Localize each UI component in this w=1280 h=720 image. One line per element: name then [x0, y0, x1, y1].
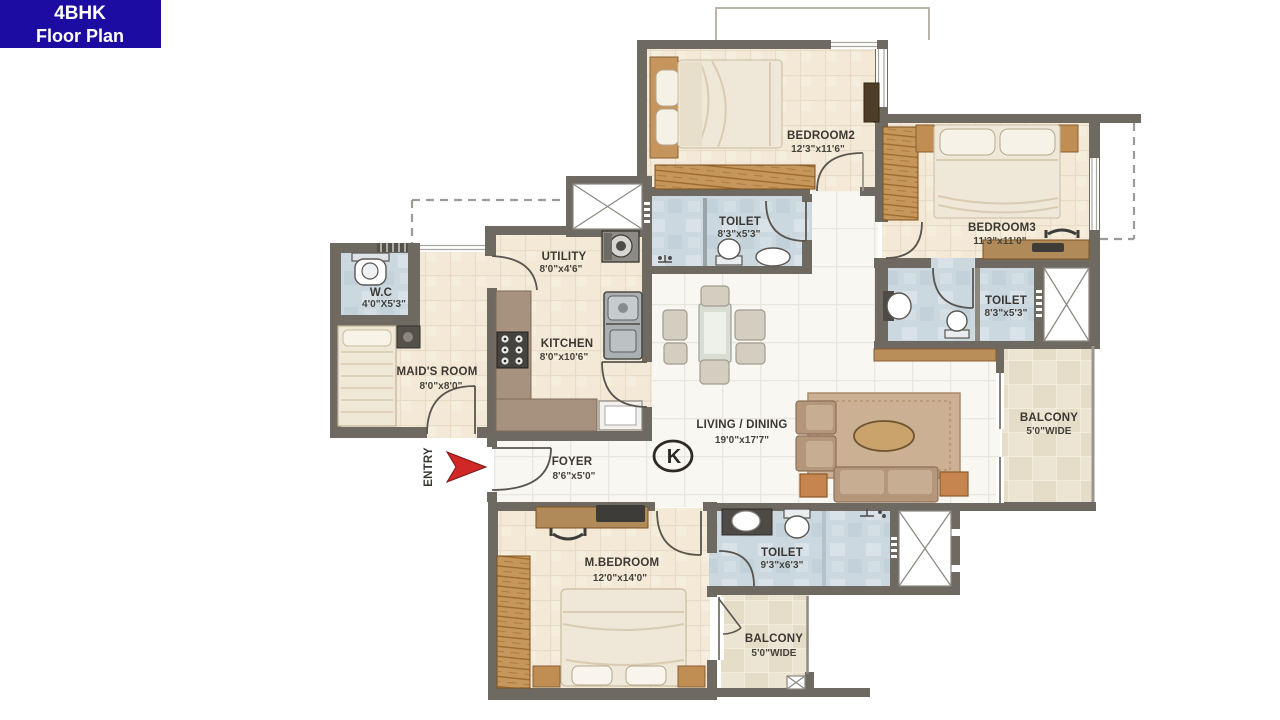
svg-text:5'0"WIDE: 5'0"WIDE: [1026, 426, 1071, 437]
svg-text:BALCONY: BALCONY: [1020, 412, 1078, 424]
svg-text:12'0"x14'0": 12'0"x14'0": [593, 573, 647, 584]
svg-text:12'3"x11'6": 12'3"x11'6": [791, 144, 845, 155]
svg-text:8'3"x5'3": 8'3"x5'3": [985, 308, 1028, 319]
svg-text:TOILET: TOILET: [719, 216, 761, 228]
svg-text:8'6"x5'0": 8'6"x5'0": [553, 471, 596, 482]
svg-text:19'0"x17'7": 19'0"x17'7": [715, 435, 769, 446]
svg-text:M.BEDROOM: M.BEDROOM: [585, 557, 660, 569]
svg-text:W.C: W.C: [370, 287, 392, 299]
svg-text:BALCONY: BALCONY: [745, 633, 803, 645]
svg-text:Floor Plan: Floor Plan: [36, 26, 124, 46]
svg-text:4'0"X5'3": 4'0"X5'3": [362, 299, 406, 310]
svg-text:KITCHEN: KITCHEN: [541, 338, 594, 350]
svg-text:8'0"x4'6": 8'0"x4'6": [540, 264, 583, 275]
svg-text:8'0"x8'0": 8'0"x8'0": [420, 381, 463, 392]
svg-text:8'3"x5'3": 8'3"x5'3": [718, 229, 761, 240]
svg-text:9'3"x6'3": 9'3"x6'3": [761, 560, 804, 571]
svg-text:8'0"x10'6": 8'0"x10'6": [540, 352, 589, 363]
svg-text:BEDROOM3: BEDROOM3: [968, 222, 1036, 234]
svg-text:MAID'S ROOM: MAID'S ROOM: [397, 366, 478, 378]
svg-text:LIVING / DINING: LIVING / DINING: [696, 419, 787, 431]
svg-text:UTILITY: UTILITY: [542, 251, 587, 263]
svg-text:ENTRY: ENTRY: [423, 447, 435, 487]
svg-text:TOILET: TOILET: [985, 295, 1027, 307]
svg-text:5'0"WIDE: 5'0"WIDE: [751, 648, 796, 659]
svg-text:BEDROOM2: BEDROOM2: [787, 130, 855, 142]
svg-text:11'3"x11'0": 11'3"x11'0": [973, 236, 1026, 247]
svg-text:K: K: [667, 446, 682, 468]
svg-text:FOYER: FOYER: [552, 456, 593, 468]
svg-text:TOILET: TOILET: [761, 547, 803, 559]
svg-text:4BHK: 4BHK: [54, 3, 106, 24]
